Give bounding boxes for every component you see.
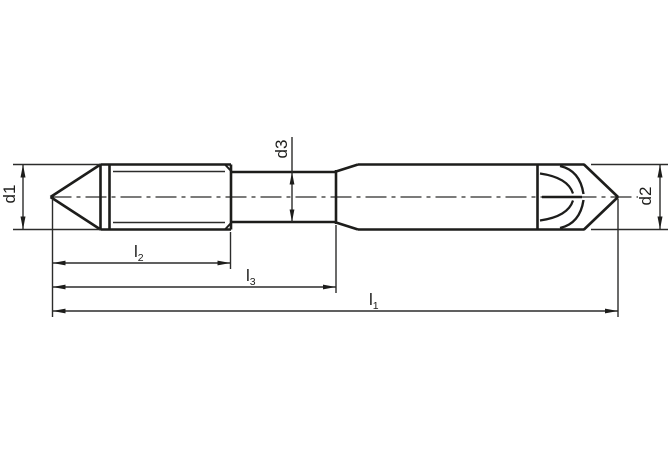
l1-label: l1 — [369, 290, 379, 312]
l1-arrow-right — [605, 309, 618, 314]
right-point-lower-slant — [584, 197, 618, 230]
l2-label-sub: 2 — [138, 252, 144, 264]
d1-label: d1 — [0, 185, 19, 204]
d3-arrow-up — [290, 172, 295, 185]
l3-label: l3 — [246, 266, 256, 288]
d3-label: d3 — [272, 140, 291, 159]
l3-label-sub: 3 — [250, 276, 256, 288]
right-point-upper-slant — [584, 165, 618, 198]
runout-inner-upper-arc — [540, 174, 573, 194]
l1-arrow-left — [53, 309, 66, 314]
left-point-lower-slant — [51, 197, 101, 230]
l2-arrow-right — [218, 261, 231, 266]
left-point-upper-slant — [51, 165, 101, 198]
arrowheads — [21, 165, 663, 314]
d2-arrow-up — [658, 165, 663, 178]
d1-arrow-down — [21, 217, 26, 230]
d3-arrow-down — [290, 210, 295, 223]
d1-arrow-up — [21, 165, 26, 178]
l2-arrow-left — [53, 261, 66, 266]
l3-arrow-right — [323, 285, 336, 290]
l1-label-sub: 1 — [373, 300, 379, 312]
l3-arrow-left — [53, 285, 66, 290]
right-thread-runout — [540, 166, 584, 228]
taper-bottom — [336, 223, 358, 230]
technical-drawing: d1 d3 d2 l2 l3 l1 — [0, 0, 670, 460]
drawing-canvas: d1 d3 d2 l2 l3 l1 — [0, 0, 670, 460]
taper-top — [336, 165, 358, 172]
runout-inner-lower-arc — [540, 201, 573, 221]
l2-label: l2 — [134, 242, 144, 264]
d2-arrow-down — [658, 217, 663, 230]
d2-label: d2 — [636, 187, 655, 206]
